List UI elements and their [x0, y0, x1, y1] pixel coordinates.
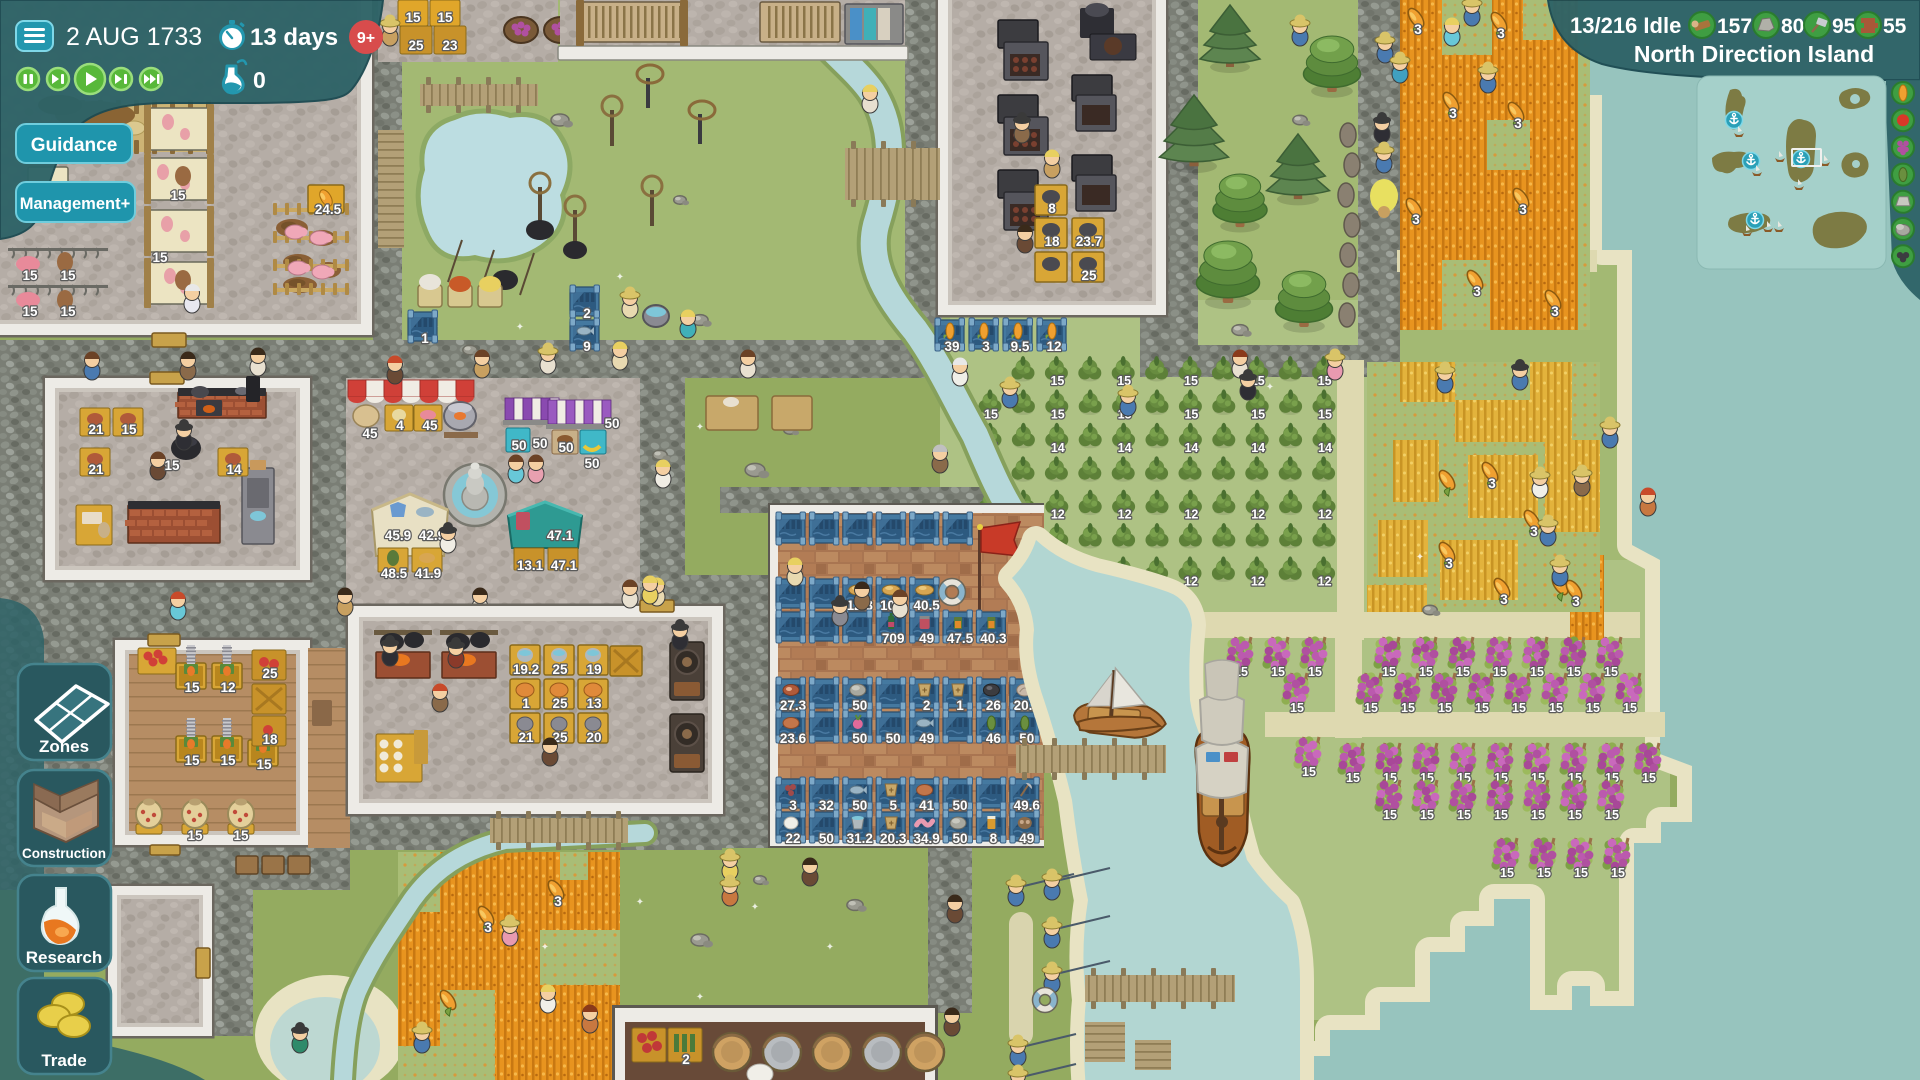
svg-text:✦: ✦: [1266, 382, 1274, 393]
svg-text:47.1: 47.1: [547, 528, 574, 543]
svg-text:3: 3: [484, 920, 492, 935]
svg-text:15: 15: [1604, 665, 1618, 679]
svg-text:3: 3: [1412, 212, 1420, 227]
svg-text:12: 12: [1118, 508, 1132, 522]
svg-text:157: 157: [1717, 15, 1752, 38]
svg-text:15: 15: [60, 268, 76, 283]
svg-text:26: 26: [986, 698, 1002, 713]
svg-text:3: 3: [554, 894, 562, 909]
svg-text:15: 15: [1318, 407, 1332, 421]
svg-text:15: 15: [1567, 665, 1581, 679]
svg-text:55: 55: [1883, 15, 1907, 38]
svg-text:15: 15: [1537, 866, 1551, 880]
svg-text:25: 25: [552, 662, 568, 677]
svg-text:15: 15: [1382, 665, 1396, 679]
svg-text:15: 15: [1364, 701, 1378, 715]
svg-text:4: 4: [396, 418, 404, 433]
svg-text:15: 15: [405, 10, 421, 25]
svg-text:21: 21: [518, 730, 534, 745]
svg-text:✦: ✦: [696, 992, 704, 1003]
svg-text:50: 50: [604, 416, 619, 431]
svg-text:80: 80: [1781, 15, 1804, 38]
svg-text:2 AUG 1733: 2 AUG 1733: [66, 23, 202, 51]
svg-text:3: 3: [1551, 304, 1559, 319]
svg-text:39: 39: [944, 339, 959, 354]
svg-text:50: 50: [511, 438, 526, 453]
svg-text:45.9: 45.9: [385, 528, 411, 543]
svg-text:15: 15: [121, 422, 137, 437]
svg-text:15: 15: [1549, 701, 1563, 715]
svg-text:19.2: 19.2: [513, 662, 539, 677]
svg-text:47.5: 47.5: [947, 631, 974, 646]
svg-text:✦: ✦: [541, 942, 549, 953]
svg-text:24.5: 24.5: [315, 202, 342, 217]
svg-text:20.3: 20.3: [880, 831, 907, 846]
svg-text:23.6: 23.6: [780, 731, 807, 746]
svg-text:15: 15: [22, 304, 38, 319]
svg-text:50: 50: [532, 436, 547, 451]
svg-text:3: 3: [1514, 116, 1522, 131]
svg-text:13/216 Idle: 13/216 Idle: [1570, 13, 1681, 38]
svg-text:50: 50: [852, 731, 867, 746]
svg-text:15: 15: [1346, 771, 1360, 785]
svg-text:2: 2: [682, 1052, 690, 1067]
svg-text:95: 95: [1832, 15, 1856, 38]
svg-text:31.2: 31.2: [847, 831, 873, 846]
svg-text:48.5: 48.5: [381, 566, 408, 581]
svg-text:Research: Research: [26, 948, 103, 967]
svg-text:2: 2: [923, 698, 931, 713]
svg-text:13 days: 13 days: [250, 24, 338, 51]
svg-text:✦: ✦: [751, 902, 759, 913]
svg-text:15: 15: [1420, 808, 1434, 822]
svg-text:Guidance: Guidance: [31, 135, 118, 156]
svg-text:15: 15: [164, 458, 180, 473]
svg-text:21: 21: [88, 462, 104, 477]
svg-text:50: 50: [584, 456, 599, 471]
svg-text:50: 50: [852, 798, 867, 813]
svg-text:12: 12: [220, 680, 235, 695]
svg-text:45: 45: [422, 418, 438, 433]
svg-text:13.1: 13.1: [517, 558, 544, 573]
svg-text:13: 13: [586, 696, 602, 711]
svg-text:15: 15: [170, 188, 186, 203]
svg-text:1: 1: [421, 331, 429, 346]
svg-text:14: 14: [1318, 441, 1332, 455]
svg-text:15: 15: [1623, 701, 1637, 715]
svg-text:15: 15: [220, 753, 236, 768]
svg-text:15: 15: [1512, 701, 1526, 715]
svg-text:1: 1: [522, 696, 530, 711]
svg-text:15: 15: [187, 828, 203, 843]
svg-text:12: 12: [1051, 508, 1065, 522]
svg-text:✦: ✦: [616, 272, 624, 283]
svg-text:45: 45: [362, 426, 378, 441]
svg-text:14: 14: [1251, 441, 1265, 455]
svg-text:50: 50: [558, 440, 573, 455]
svg-text:25: 25: [262, 666, 278, 681]
svg-text:18: 18: [262, 732, 278, 747]
svg-text:15: 15: [1419, 665, 1433, 679]
svg-text:15: 15: [1642, 771, 1656, 785]
svg-text:14: 14: [1118, 441, 1132, 455]
svg-text:✦: ✦: [516, 322, 524, 333]
svg-text:12: 12: [1318, 574, 1332, 588]
svg-text:15: 15: [1290, 701, 1304, 715]
svg-text:15: 15: [1308, 665, 1322, 679]
svg-text:46: 46: [986, 731, 1002, 746]
svg-text:49: 49: [919, 731, 934, 746]
svg-text:8: 8: [1048, 201, 1056, 216]
svg-text:+: +: [889, 785, 894, 795]
svg-text:15: 15: [152, 250, 168, 265]
svg-text:15: 15: [1184, 407, 1198, 421]
svg-text:15: 15: [256, 757, 272, 772]
svg-text:15: 15: [184, 680, 200, 695]
svg-text:709: 709: [882, 631, 905, 646]
svg-text:14: 14: [1184, 441, 1198, 455]
svg-text:3: 3: [1445, 556, 1453, 571]
svg-text:1: 1: [956, 698, 964, 713]
svg-text:3: 3: [1500, 592, 1508, 607]
svg-text:12: 12: [1184, 508, 1198, 522]
svg-text:15: 15: [184, 753, 200, 768]
svg-text:41: 41: [919, 798, 935, 813]
svg-text:47.1: 47.1: [551, 558, 578, 573]
svg-text:North Direction Island: North Direction Island: [1634, 41, 1874, 67]
svg-text:15: 15: [1568, 808, 1582, 822]
svg-text:3: 3: [1519, 202, 1527, 217]
svg-text:15: 15: [1605, 808, 1619, 822]
svg-text:49: 49: [1019, 831, 1034, 846]
svg-text:14: 14: [226, 462, 242, 477]
svg-text:15: 15: [22, 268, 38, 283]
svg-text:3: 3: [1473, 284, 1481, 299]
svg-text:✦: ✦: [696, 422, 704, 433]
svg-text:15: 15: [1251, 407, 1265, 421]
svg-text:15: 15: [1475, 701, 1489, 715]
svg-text:15: 15: [1531, 808, 1545, 822]
svg-text:15: 15: [1457, 808, 1471, 822]
svg-text:15: 15: [1302, 765, 1316, 779]
svg-text:20: 20: [586, 730, 601, 745]
svg-text:15: 15: [437, 10, 453, 25]
svg-text:✦: ✦: [826, 942, 834, 953]
svg-text:15: 15: [60, 304, 76, 319]
svg-text:3: 3: [1449, 106, 1457, 121]
svg-text:41.9: 41.9: [415, 566, 441, 581]
svg-text:22: 22: [785, 831, 800, 846]
svg-text:15: 15: [984, 407, 998, 421]
svg-text:15: 15: [1456, 665, 1470, 679]
svg-text:3: 3: [1414, 22, 1422, 37]
svg-text:3: 3: [789, 798, 797, 813]
svg-text:34.9: 34.9: [913, 831, 939, 846]
svg-text:49: 49: [919, 631, 934, 646]
svg-text:9+: 9+: [357, 30, 375, 47]
svg-text:+: +: [889, 818, 894, 828]
svg-text:19: 19: [586, 662, 601, 677]
svg-text:+: +: [922, 685, 927, 695]
svg-text:5: 5: [889, 798, 897, 813]
svg-text:15: 15: [1051, 407, 1065, 421]
svg-text:0: 0: [253, 67, 266, 93]
svg-text:25: 25: [552, 696, 568, 711]
svg-text:40.3: 40.3: [980, 631, 1007, 646]
svg-text:25: 25: [1081, 268, 1097, 283]
svg-text:3: 3: [1488, 476, 1496, 491]
svg-text:3: 3: [982, 339, 990, 354]
svg-text:15: 15: [1500, 866, 1514, 880]
svg-text:+: +: [955, 685, 960, 695]
svg-text:15: 15: [1611, 866, 1625, 880]
svg-text:✦: ✦: [1416, 552, 1424, 563]
svg-text:12: 12: [1318, 508, 1332, 522]
svg-text:50: 50: [886, 731, 901, 746]
svg-text:12: 12: [1046, 339, 1061, 354]
svg-text:21: 21: [88, 422, 104, 437]
svg-text:15: 15: [1383, 808, 1397, 822]
svg-text:50: 50: [952, 798, 967, 813]
svg-text:Trade: Trade: [41, 1051, 86, 1070]
svg-text:18: 18: [1044, 234, 1060, 249]
svg-text:12: 12: [1251, 574, 1265, 588]
svg-text:15: 15: [233, 828, 249, 843]
svg-text:50: 50: [852, 698, 867, 713]
svg-text:32: 32: [819, 798, 834, 813]
svg-text:15: 15: [1050, 374, 1064, 388]
svg-text:23: 23: [442, 38, 458, 53]
svg-text:23.7: 23.7: [1076, 234, 1102, 249]
svg-text:Management+: Management+: [20, 195, 131, 213]
svg-text:50: 50: [952, 831, 967, 846]
svg-text:50: 50: [819, 831, 834, 846]
svg-text:2: 2: [583, 306, 591, 321]
svg-text:15: 15: [1530, 665, 1544, 679]
svg-text:12: 12: [1251, 508, 1265, 522]
svg-text:3: 3: [1530, 524, 1538, 539]
svg-text:15: 15: [1271, 665, 1285, 679]
svg-text:15: 15: [1494, 808, 1508, 822]
svg-text:15: 15: [1493, 665, 1507, 679]
svg-text:8: 8: [990, 831, 998, 846]
svg-text:15: 15: [1574, 866, 1588, 880]
svg-text:14: 14: [1051, 441, 1065, 455]
svg-text:Construction: Construction: [22, 846, 106, 861]
svg-text:15: 15: [1438, 701, 1452, 715]
svg-text:25: 25: [408, 38, 424, 53]
svg-text:3: 3: [1497, 26, 1505, 41]
svg-text:15: 15: [1586, 701, 1600, 715]
svg-text:3: 3: [1572, 594, 1580, 609]
svg-text:15: 15: [1184, 374, 1198, 388]
svg-text:15: 15: [1401, 701, 1415, 715]
svg-text:9.5: 9.5: [1011, 339, 1030, 354]
svg-text:9: 9: [583, 339, 591, 354]
svg-text:✦: ✦: [636, 897, 644, 908]
